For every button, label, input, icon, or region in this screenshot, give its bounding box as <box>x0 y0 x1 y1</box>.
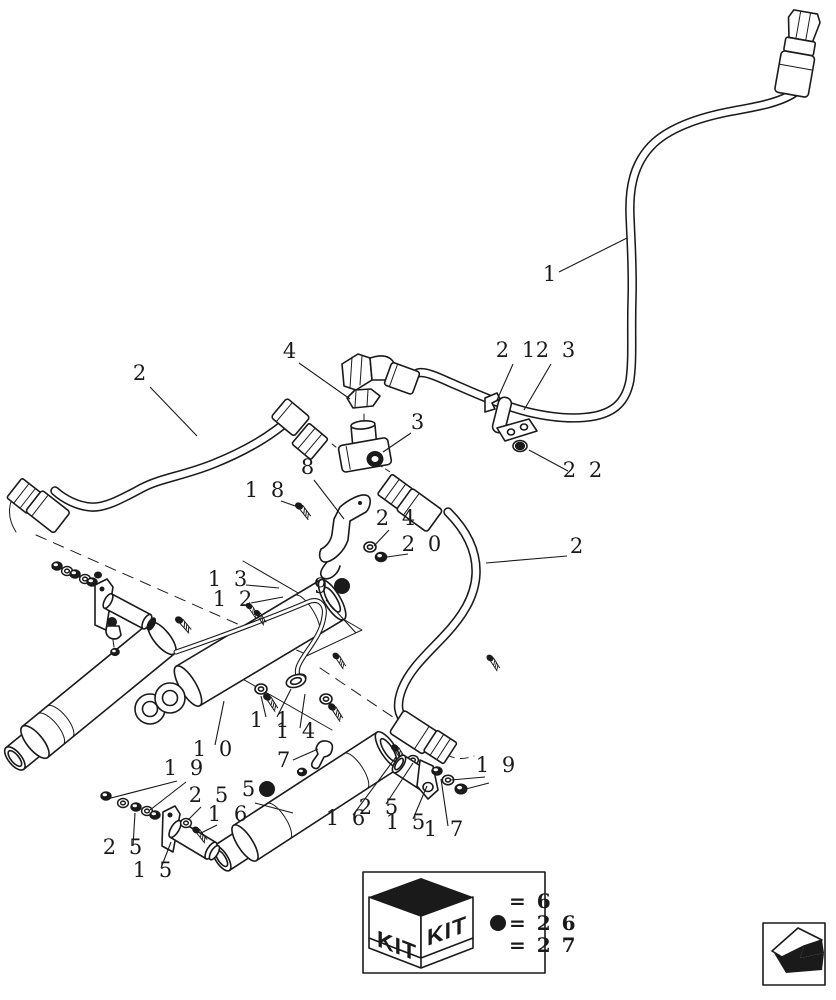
callout-leader-line <box>451 777 485 780</box>
kit-item-bullet-icon <box>259 781 275 797</box>
callout-leader-line <box>314 480 344 519</box>
callout-leader-line <box>524 364 551 410</box>
kit-legend-line-2: = 2 6 <box>509 911 578 935</box>
callout-number: 2 <box>570 534 586 558</box>
callout-number: 1 <box>543 262 559 286</box>
callout-number: 2 0 <box>402 532 444 556</box>
hose-1 <box>418 9 822 418</box>
callout-number: 1 9 <box>164 756 206 780</box>
kit-legend-line-1: = 6 <box>509 889 553 913</box>
callout-7: 7 <box>277 748 318 772</box>
callout-number: 1 5 <box>386 810 428 834</box>
clamp-nut <box>513 441 527 452</box>
callout-number: 3 <box>411 410 427 434</box>
callout-22: 2 2 <box>529 450 605 482</box>
callout-3: 3 <box>383 410 427 452</box>
callout-12: 1 2 <box>213 587 283 611</box>
callout-18: 1 8 <box>245 478 301 508</box>
callout-1: 1 <box>543 238 627 286</box>
callout-number: 8 <box>301 455 317 479</box>
callout-leader-line <box>486 556 567 563</box>
callout-number: 1 2 <box>213 587 255 611</box>
callout-leader-line <box>559 238 627 272</box>
back-arrow-icon[interactable] <box>763 923 825 985</box>
parts-diagram-canvas: KIT KIT = 6 = 2 6 = 2 7 1242 12 332 281 … <box>0 0 836 1000</box>
callout-number: 1 7 <box>424 817 466 841</box>
callout-number: 7 <box>277 748 293 772</box>
callout-number: 2 4 <box>376 506 418 530</box>
callout-number: 5 <box>242 777 258 801</box>
elbow-fitting <box>342 354 420 395</box>
tee-fitting-3 <box>338 420 392 473</box>
callout-25-lower-left: 2 5 <box>103 813 145 859</box>
callout-leader-line <box>251 597 283 603</box>
callout-leader-line <box>111 781 177 798</box>
callout-2-right-hose: 2 <box>486 534 586 563</box>
callout-4: 4 <box>283 339 350 399</box>
callout-number: 1 6 <box>208 802 250 826</box>
callout-number: 2 2 <box>563 458 605 482</box>
callout-number: 2 3 <box>536 338 578 362</box>
callout-leader-line <box>201 825 217 833</box>
cylinder-upper-left <box>0 562 194 778</box>
callout-number: 2 5 <box>103 835 145 859</box>
callout-number: 1 4 <box>276 719 318 743</box>
callout-8: 8 <box>301 455 344 519</box>
callout-leader-line <box>188 807 201 820</box>
hose-1-top-fitting <box>774 9 822 98</box>
kit-bullet-icon <box>490 915 506 931</box>
kit-box: KIT KIT = 6 = 2 6 = 2 7 <box>363 872 578 973</box>
callout-leader-line <box>374 530 389 546</box>
callout-10: 1 0 <box>193 701 235 761</box>
callout-number: 1 8 <box>245 478 287 502</box>
kit-item-bullet-icon <box>334 578 350 594</box>
callout-number: 1 5 <box>133 858 175 882</box>
callout-2-left-hose: 2 <box>133 361 197 436</box>
swivel-nut-4 <box>347 389 380 408</box>
callout-20: 2 0 <box>387 532 444 557</box>
callout-number: 9 <box>314 574 330 598</box>
callout-number: 2 <box>133 361 149 385</box>
bracket-8 <box>292 495 387 579</box>
parts-diagram-page: KIT KIT = 6 = 2 6 = 2 7 1242 12 332 281 … <box>0 0 836 1000</box>
grease-fitting <box>106 617 121 656</box>
callout-leader-line <box>497 364 513 400</box>
callout-number: 1 9 <box>476 753 518 777</box>
hose-2-left <box>7 398 329 533</box>
callout-number: 2 1 <box>496 338 538 362</box>
callout-15-right: 1 5 <box>386 786 428 834</box>
callout-21: 2 1 <box>496 338 538 400</box>
kit-legend-line-3: = 2 7 <box>509 933 578 957</box>
callout-leader-line <box>150 387 197 436</box>
callout-number: 4 <box>283 339 299 363</box>
